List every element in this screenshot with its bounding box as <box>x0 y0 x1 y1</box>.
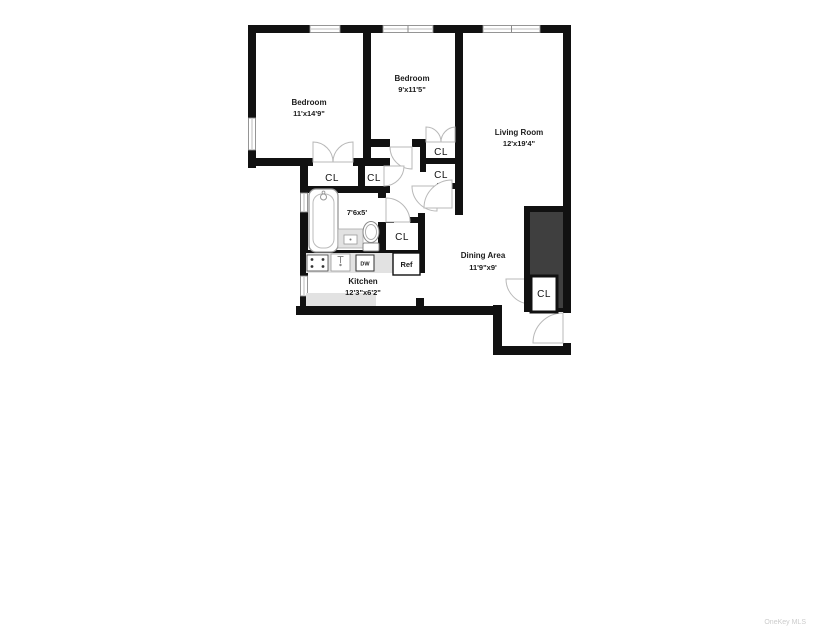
room-dims-bedroom-1: 11'x14'9" <box>293 109 325 118</box>
wall-segment <box>378 186 386 198</box>
door-swing-icon <box>441 127 455 142</box>
room-label-bedroom-1: Bedroom <box>291 98 326 107</box>
room-dims-living-room: 12'x19'4" <box>503 139 536 148</box>
floorplan-canvas: DW Ref Bedroom 11'x14'9" Bedroom <box>0 0 840 630</box>
wall-segment <box>363 139 390 147</box>
closet-label-bedroom-2-top: CL <box>434 147 448 158</box>
door-swing-icon <box>386 198 410 222</box>
bathtub-icon <box>309 189 338 252</box>
closet-label-hall: CL <box>395 232 409 243</box>
window-icon <box>301 193 308 212</box>
room-label-kitchen: Kitchen <box>348 277 377 286</box>
door-swing-icon <box>424 180 452 208</box>
door-swing-icon <box>333 142 353 162</box>
vanity-sink-icon <box>338 229 363 248</box>
room-dims-bathroom: 7'6x5' <box>347 208 367 217</box>
stove-icon <box>307 255 328 271</box>
window-icon <box>383 26 433 33</box>
closet-label-entry: CL <box>537 289 551 300</box>
door-swing-icon <box>313 142 333 162</box>
dishwasher-icon: DW <box>356 255 374 271</box>
wall-segment <box>300 166 308 193</box>
room-dims-dining-area: 11'9"x9' <box>469 263 497 272</box>
dishwasher-label: DW <box>360 262 370 268</box>
room-dims-kitchen: 12'3"x6'2" <box>345 288 381 297</box>
wall-segment <box>248 25 310 33</box>
closet-label-bedroom-2-bottom: CL <box>434 170 448 181</box>
refrigerator-label: Ref <box>400 260 413 269</box>
watermark-text: OneKey MLS <box>764 619 806 626</box>
door-swing-icon <box>384 166 404 186</box>
toilet-icon <box>363 222 379 252</box>
wall-segment <box>296 306 502 315</box>
closet-label-bedroom-1: CL <box>325 173 339 184</box>
wall-segment <box>353 158 390 166</box>
wall-segment <box>248 158 313 166</box>
wall-segment <box>248 25 256 118</box>
window-icon <box>310 26 340 33</box>
room-label-bedroom-2: Bedroom <box>394 74 429 83</box>
wall-segment <box>363 25 371 158</box>
wall-segment <box>416 298 424 306</box>
wall-segment <box>420 164 426 172</box>
wall-segment <box>358 166 365 186</box>
window-icon <box>249 118 256 150</box>
room-dims-bedroom-2: 9'x11'5" <box>398 85 426 94</box>
floorplan-page: DW Ref Bedroom 11'x14'9" Bedroom <box>0 0 840 630</box>
closet-label-hall-small: CL <box>367 173 381 184</box>
wall-segment <box>420 142 426 158</box>
room-label-living-room: Living Room <box>495 128 543 137</box>
wall-segment <box>563 25 571 313</box>
wall-segment <box>493 346 571 355</box>
door-swing-icon <box>426 127 441 142</box>
kitchen-sink-icon <box>331 254 350 271</box>
door-swing-icon <box>533 313 563 343</box>
refrigerator-icon: Ref <box>393 253 420 275</box>
bathroom-fixtures <box>309 189 379 252</box>
wall-segment <box>340 25 383 33</box>
wall-segment <box>455 25 463 215</box>
window-icon <box>483 26 540 33</box>
room-label-dining-area: Dining Area <box>461 251 506 260</box>
